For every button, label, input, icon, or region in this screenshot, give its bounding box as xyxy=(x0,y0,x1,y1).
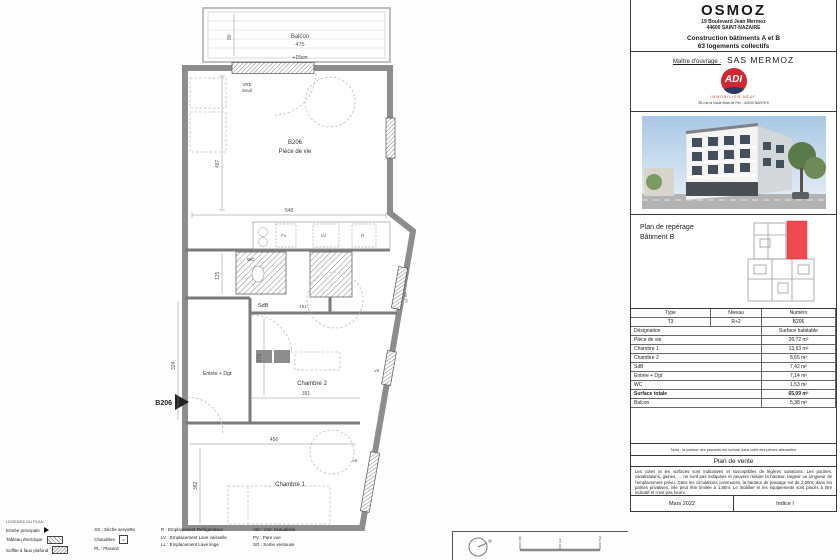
sdb-label: SdB xyxy=(258,303,269,309)
compass-and-scale: 0 1 2 xyxy=(462,534,622,558)
client-box: Maître d'ouvrage : SAS MERMOZ ADI IMMOBI… xyxy=(631,52,836,112)
ab15-label: AB.15 xyxy=(403,292,409,304)
legend-ss-label: SS : Sèche serviette xyxy=(94,527,135,532)
row-label: Entrée + Dgt xyxy=(631,372,762,381)
dim-382: 382 xyxy=(193,481,199,490)
title-block: OSMOZ 19 Boulevard Jean Mermoz 44600 SAI… xyxy=(630,0,837,512)
sale-plan-label: Plan de vente xyxy=(714,458,754,465)
row-value: 7,42 m² xyxy=(762,363,836,372)
balcony-row-label: Balcon xyxy=(631,399,762,408)
legend-fridge-label: R : Emplacement Réfrigérateur xyxy=(161,527,223,532)
balcony-label: Balcon xyxy=(291,34,309,40)
legend-title: LEGENDE DU PLAN xyxy=(6,519,436,524)
balcony-depth-dim: 90 xyxy=(227,34,233,40)
surface-table: Type Niveau Numéro T3 R+2 B206 Désignati… xyxy=(631,309,836,408)
legend-col-4: VM : Vmc mutualisée PV : Pare vue SO : S… xyxy=(253,527,296,554)
row-value: 26,72 m² xyxy=(762,336,836,345)
shower-block xyxy=(310,252,352,297)
dim-273: 273 xyxy=(257,353,263,362)
dim-456: 456 xyxy=(270,437,279,443)
vr-label-2: VR xyxy=(374,368,380,373)
client-name: SAS MERMOZ xyxy=(727,55,794,65)
dim-391: 391 xyxy=(302,391,311,397)
adi-tagline: IMMOBILIER NEUF xyxy=(631,95,836,99)
legend-boiler-label: Chaudière xyxy=(94,537,115,542)
legend-pv-label: PV : Pare vue xyxy=(253,535,281,540)
seuil-label: Seuil xyxy=(242,88,252,93)
scale-0: 0 xyxy=(519,537,522,543)
threshold-label: +15cm xyxy=(292,55,307,61)
dim-324: 324 xyxy=(171,361,177,370)
total-value: 65,09 m² xyxy=(762,390,836,399)
program-line-1: Construction bâtiments A et B xyxy=(631,35,836,43)
frame-line-h xyxy=(452,531,628,532)
legend-dishwasher-label: LV : Emplacement Lave vaisselle xyxy=(161,535,227,540)
unit-number: B206 xyxy=(762,318,836,327)
living-label: Pièce de vie xyxy=(279,149,312,155)
total-label: Surface totale xyxy=(631,390,762,399)
table-row: WC 1,53 m² xyxy=(631,381,836,390)
row-label: Chambre 2 xyxy=(631,354,762,363)
plan-sheet: Balcon 475 90 +15cm VRE Seuil VR VR AB.1… xyxy=(0,0,840,560)
dim-191: 191 xyxy=(299,304,307,309)
reperage-line-1: Plan de repérage xyxy=(640,223,694,234)
legend-col-3: R : Emplacement Réfrigérateur LV : Empla… xyxy=(161,527,227,554)
note-text: Nota : la surface des placards est inclu… xyxy=(671,448,796,452)
table-total-row: Surface totale 65,09 m² xyxy=(631,390,836,399)
row-label: Chambre 1 xyxy=(631,345,762,354)
unit-type: T3 xyxy=(631,318,711,327)
scale-2: 2 xyxy=(599,537,602,543)
oven-label: Fo xyxy=(281,233,287,238)
table-row: Entrée + Dgt 7,14 m² xyxy=(631,372,836,381)
balcony: Balcon 475 90 xyxy=(203,8,390,62)
balcony-width-dim: 475 xyxy=(295,42,304,48)
designation-header: Désignation xyxy=(631,327,762,336)
row-value: 1,53 m² xyxy=(762,381,836,390)
col-type: Type xyxy=(631,309,711,318)
legend-entry-label: Entrée principale xyxy=(6,528,40,533)
highlighted-unit xyxy=(787,221,807,259)
floor-plan: Balcon 475 90 +15cm VRE Seuil VR VR AB.1… xyxy=(0,0,630,560)
building-photo-box xyxy=(631,112,836,215)
toilet xyxy=(252,266,264,282)
unit-level: R+2 xyxy=(711,318,762,327)
issue-date: Mars 2022 xyxy=(631,496,734,511)
closet-2 xyxy=(274,350,290,363)
legend-col-2: SS : Sèche serviette Chaudièrec PL : Pla… xyxy=(94,527,135,554)
legend-elec-label: Tableau électrique xyxy=(6,537,43,542)
program-line-2: 63 logements collectifs xyxy=(631,43,836,51)
living-window xyxy=(386,118,395,158)
sale-plan-box: Plan de vente xyxy=(631,456,836,467)
row-label: Pièce de vie xyxy=(631,336,762,345)
row-label: WC xyxy=(631,381,762,390)
vre-label: VRE xyxy=(242,82,251,87)
project-address-2: 44600 SAINT-NAZAIRE xyxy=(631,25,836,31)
table-balcony-row: Balcon 5,38 m² xyxy=(631,399,836,408)
dim-487: 487 xyxy=(215,159,221,168)
reperage-line-2: Bâtiment B xyxy=(640,233,694,244)
boiler-icon: c xyxy=(119,535,128,544)
col-niveau: Niveau xyxy=(711,309,762,318)
key-plan xyxy=(734,219,830,305)
date-index-row: Mars 2022 Indice I xyxy=(631,496,836,511)
bay-window xyxy=(232,63,314,74)
main-entrance-icon xyxy=(44,527,49,533)
surface-table-box: Type Niveau Numéro T3 R+2 B206 Désignati… xyxy=(631,309,836,444)
legend-so-label: SO : Sortie ventouse xyxy=(253,542,295,547)
soffit-icon xyxy=(52,546,68,554)
legend-pl-label: PL : Placard xyxy=(94,546,118,551)
row-label: SdB xyxy=(631,363,762,372)
adi-logo-text: ADI xyxy=(721,74,747,85)
adi-logo: ADI xyxy=(721,68,747,94)
disclaimer-text: Les cotes et les surfaces sont indicativ… xyxy=(635,469,832,495)
plan-legend: LEGENDE DU PLAN Entrée principale Tablea… xyxy=(6,519,436,554)
revision-index: Indice I xyxy=(734,496,836,511)
row-value: 13,63 m² xyxy=(762,345,836,354)
table-row: Chambre 2 8,65 m² xyxy=(631,354,836,363)
dim-548: 548 xyxy=(285,208,294,214)
table-row: Chambre 1 13,63 m² xyxy=(631,345,836,354)
balcony-row-value: 5,38 m² xyxy=(762,399,836,408)
scale-1: 1 xyxy=(559,539,562,545)
adi-address: 2B rue la Noue Bras de Fer - 44200 NANTE… xyxy=(631,101,836,105)
dishwasher-label: LV xyxy=(321,233,326,238)
building-rendering xyxy=(642,116,826,209)
reperage-box: Plan de repérage Bâtiment B xyxy=(631,215,836,310)
legend-washer-label: LL : Emplacement Lave linge xyxy=(161,542,219,547)
electrical-panel-icon xyxy=(47,536,63,544)
frame-line-v xyxy=(452,531,453,560)
north-compass-icon xyxy=(469,538,491,556)
project-header: OSMOZ 19 Boulevard Jean Mermoz 44600 SAI… xyxy=(631,0,836,52)
dim-125: 125 xyxy=(215,271,221,280)
surface-header: Surface habitable xyxy=(762,327,836,336)
entry-label: Entrée + Dgt xyxy=(203,371,232,377)
note-box: Nota : la surface des placards est inclu… xyxy=(631,444,836,456)
wc-label: WC xyxy=(247,257,255,262)
bedroom2-label: Chambre 2 xyxy=(297,381,327,387)
col-numero: Numéro xyxy=(762,309,836,318)
unit-label: B206 xyxy=(288,140,303,146)
legend-soffit-label: Soffite à faux plafond xyxy=(6,548,48,553)
project-title: OSMOZ xyxy=(631,2,836,19)
table-row: Pièce de vie 26,72 m² xyxy=(631,336,836,345)
scale-bar: 0 1 2 xyxy=(519,537,602,551)
legend-col-1: Entrée principale Tableau électrique Sof… xyxy=(6,527,68,554)
legend-vmc-label: VM : Vmc mutualisée xyxy=(253,527,296,532)
entrance-arrow-label: B206 xyxy=(155,400,172,407)
bedroom1-label: Chambre 1 xyxy=(275,482,305,488)
table-row: SdB 7,42 m² xyxy=(631,363,836,372)
row-value: 8,65 m² xyxy=(762,354,836,363)
disclaimer-box: Les cotes et les surfaces sont indicativ… xyxy=(631,467,836,496)
client-label: Maître d'ouvrage : xyxy=(673,59,721,65)
row-value: 7,14 m² xyxy=(762,372,836,381)
